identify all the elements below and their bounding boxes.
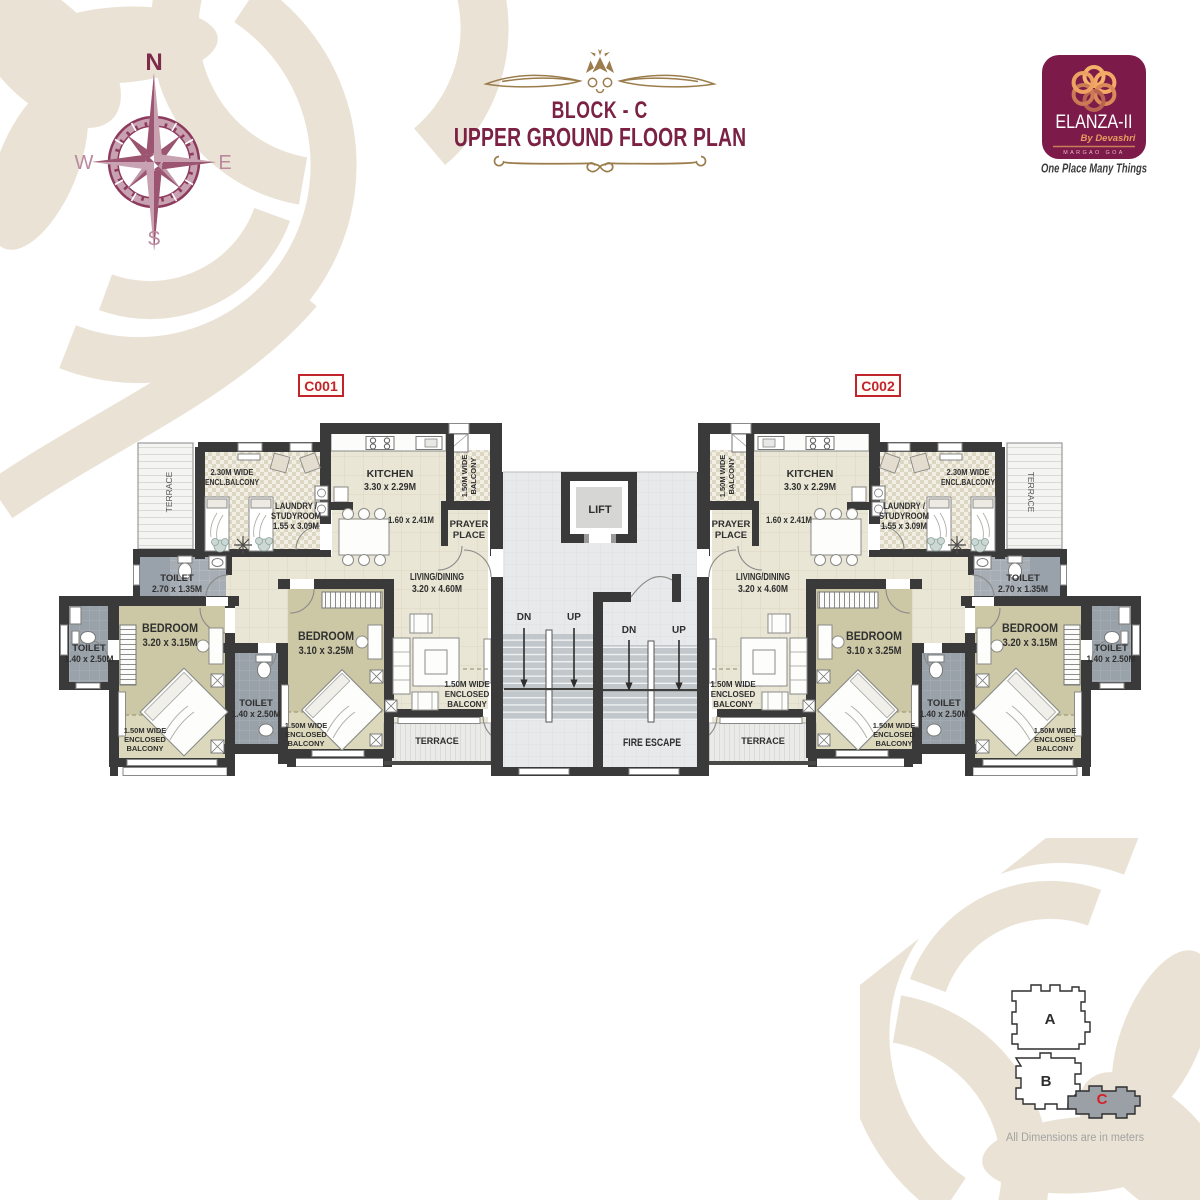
svg-text:1.50M WIDE: 1.50M WIDE — [285, 721, 328, 730]
svg-text:2.70 x 1.35M: 2.70 x 1.35M — [998, 584, 1048, 595]
svg-text:3.20 x 3.15M: 3.20 x 3.15M — [143, 637, 198, 649]
svg-text:3.30 x 2.29M: 3.30 x 2.29M — [784, 482, 836, 493]
svg-text:3.10 x 3.25M: 3.10 x 3.25M — [299, 645, 354, 657]
svg-text:BALCONY: BALCONY — [126, 744, 163, 753]
svg-text:1.50M WIDE: 1.50M WIDE — [460, 455, 469, 498]
svg-text:C: C — [1097, 1091, 1108, 1108]
svg-text:1.60 x 2.41M: 1.60 x 2.41M — [766, 515, 812, 526]
svg-text:STUDYROOM: STUDYROOM — [879, 511, 929, 521]
svg-text:KITCHEN: KITCHEN — [787, 468, 834, 480]
svg-text:PLACE: PLACE — [715, 530, 747, 541]
svg-text:MARGAO GOA: MARGAO GOA — [1063, 150, 1124, 156]
svg-text:BALCONY: BALCONY — [875, 739, 912, 748]
svg-text:1.50M WIDE: 1.50M WIDE — [124, 726, 167, 735]
svg-text:3.20 x 4.60M: 3.20 x 4.60M — [738, 584, 788, 595]
svg-text:ENCLOSED: ENCLOSED — [873, 730, 915, 739]
svg-text:TERRACE: TERRACE — [164, 471, 174, 512]
svg-text:C002: C002 — [861, 378, 895, 394]
svg-text:1.50M WIDE: 1.50M WIDE — [710, 680, 756, 689]
svg-text:PLACE: PLACE — [453, 530, 485, 541]
svg-text:2.30M WIDE: 2.30M WIDE — [211, 467, 254, 477]
svg-text:TERRACE: TERRACE — [1026, 472, 1036, 513]
svg-text:BALCONY: BALCONY — [287, 739, 324, 748]
svg-text:All Dimensions are in meters: All Dimensions are in meters — [1006, 1132, 1144, 1144]
svg-text:TERRACE: TERRACE — [741, 736, 785, 746]
svg-text:LIVING/DINING: LIVING/DINING — [410, 572, 464, 583]
svg-text:ENCLOSED: ENCLOSED — [1034, 735, 1076, 744]
svg-text:TOILET: TOILET — [927, 698, 961, 709]
svg-text:C001: C001 — [304, 378, 338, 394]
svg-text:ENCLOSED: ENCLOSED — [285, 730, 327, 739]
svg-text:TOILET: TOILET — [1094, 643, 1128, 654]
svg-text:ENCLOSED: ENCLOSED — [445, 690, 490, 699]
svg-text:1.40 x 2.50M: 1.40 x 2.50M — [65, 654, 114, 665]
svg-text:1.40 x 2.50M: 1.40 x 2.50M — [1087, 654, 1136, 665]
svg-text:TOILET: TOILET — [160, 573, 194, 584]
svg-text:A: A — [1045, 1011, 1056, 1028]
svg-text:FIRE ESCAPE: FIRE ESCAPE — [623, 737, 681, 749]
svg-text:ENCLOSED: ENCLOSED — [124, 735, 166, 744]
svg-text:BEDROOM: BEDROOM — [142, 621, 198, 635]
svg-text:One Place Many Things: One Place Many Things — [1041, 161, 1147, 176]
svg-text:E: E — [218, 152, 231, 174]
svg-text:PRAYER: PRAYER — [712, 519, 751, 530]
svg-text:TERRACE: TERRACE — [415, 736, 459, 746]
svg-text:2.70 x 1.35M: 2.70 x 1.35M — [152, 584, 202, 595]
svg-text:LIVING/DINING: LIVING/DINING — [736, 572, 790, 583]
svg-text:BALCONY: BALCONY — [727, 457, 736, 494]
svg-text:UPPER GROUND FLOOR PLAN: UPPER GROUND FLOOR PLAN — [454, 122, 746, 152]
svg-text:N: N — [145, 49, 162, 76]
svg-text:BEDROOM: BEDROOM — [298, 629, 354, 643]
svg-text:DN: DN — [622, 625, 636, 636]
svg-text:1.50M WIDE: 1.50M WIDE — [444, 680, 490, 689]
svg-text:1.50M WIDE: 1.50M WIDE — [718, 455, 727, 498]
svg-text:UP: UP — [672, 625, 686, 636]
svg-text:KITCHEN: KITCHEN — [367, 468, 414, 480]
svg-text:1.60 x 2.41M: 1.60 x 2.41M — [388, 515, 434, 526]
svg-text:ENCLOSED: ENCLOSED — [711, 690, 756, 699]
svg-text:ENCL.BALCONY: ENCL.BALCONY — [205, 477, 259, 487]
svg-text:BALCONY: BALCONY — [469, 457, 478, 494]
svg-text:By Devashri: By Devashri — [1081, 133, 1136, 144]
svg-text:PRAYER: PRAYER — [450, 519, 489, 530]
svg-text:BALCONY: BALCONY — [713, 700, 753, 709]
svg-text:STUDYROOM: STUDYROOM — [271, 511, 321, 521]
svg-text:3.30 x 2.29M: 3.30 x 2.29M — [364, 482, 416, 493]
svg-text:1.40 x 2.50M: 1.40 x 2.50M — [920, 709, 969, 720]
svg-text:BEDROOM: BEDROOM — [846, 629, 902, 643]
svg-text:3.20 x 3.15M: 3.20 x 3.15M — [1003, 637, 1058, 649]
svg-text:W: W — [75, 152, 94, 174]
svg-text:B: B — [1041, 1073, 1052, 1090]
svg-text:2.30M WIDE: 2.30M WIDE — [947, 467, 990, 477]
svg-text:BALCONY: BALCONY — [1036, 744, 1073, 753]
svg-text:3.10 x 3.25M: 3.10 x 3.25M — [847, 645, 902, 657]
svg-text:1.50M WIDE: 1.50M WIDE — [873, 721, 916, 730]
svg-text:1.40 x 2.50M: 1.40 x 2.50M — [232, 709, 281, 720]
svg-text:ENCL.BALCONY: ENCL.BALCONY — [941, 477, 995, 487]
svg-text:DN: DN — [517, 612, 531, 623]
svg-text:UP: UP — [567, 612, 581, 623]
svg-text:1.55 x 3.09M: 1.55 x 3.09M — [881, 521, 927, 531]
svg-text:BALCONY: BALCONY — [447, 700, 487, 709]
svg-text:LAUNDRY /: LAUNDRY / — [275, 501, 317, 511]
svg-text:TOILET: TOILET — [1006, 573, 1040, 584]
svg-text:TOILET: TOILET — [239, 698, 273, 709]
svg-text:1.55 x 3.09M: 1.55 x 3.09M — [273, 521, 319, 531]
svg-text:ELANZA-II: ELANZA-II — [1055, 111, 1132, 133]
svg-text:1.50M WIDE: 1.50M WIDE — [1034, 726, 1077, 735]
svg-text:3.20 x 4.60M: 3.20 x 4.60M — [412, 584, 462, 595]
svg-text:BEDROOM: BEDROOM — [1002, 621, 1058, 635]
svg-text:S: S — [147, 228, 160, 250]
svg-text:BLOCK - C: BLOCK - C — [552, 96, 648, 124]
svg-text:LAUNDRY /: LAUNDRY / — [883, 501, 925, 511]
svg-text:TOILET: TOILET — [72, 643, 106, 654]
svg-text:LIFT: LIFT — [588, 504, 611, 516]
